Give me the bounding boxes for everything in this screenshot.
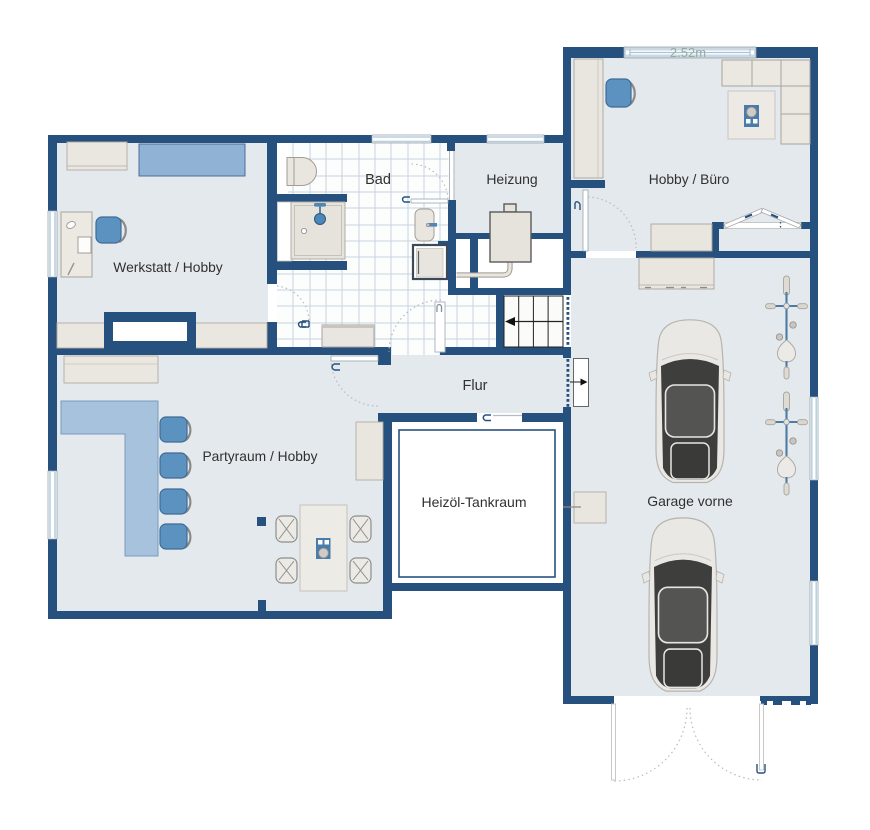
- svg-text:Garage vorne: Garage vorne: [647, 493, 733, 509]
- svg-text:Hobby / Büro: Hobby / Büro: [649, 172, 730, 187]
- svg-text:Heizung: Heizung: [486, 171, 537, 187]
- svg-text:Heizöl-Tankraum: Heizöl-Tankraum: [421, 494, 526, 510]
- svg-text:Werkstatt / Hobby: Werkstatt / Hobby: [113, 260, 222, 275]
- svg-text:2.52m: 2.52m: [670, 45, 706, 60]
- svg-text:Partyraum / Hobby: Partyraum / Hobby: [202, 449, 317, 464]
- svg-text:Flur: Flur: [463, 378, 488, 394]
- svg-text:Bad: Bad: [365, 172, 391, 188]
